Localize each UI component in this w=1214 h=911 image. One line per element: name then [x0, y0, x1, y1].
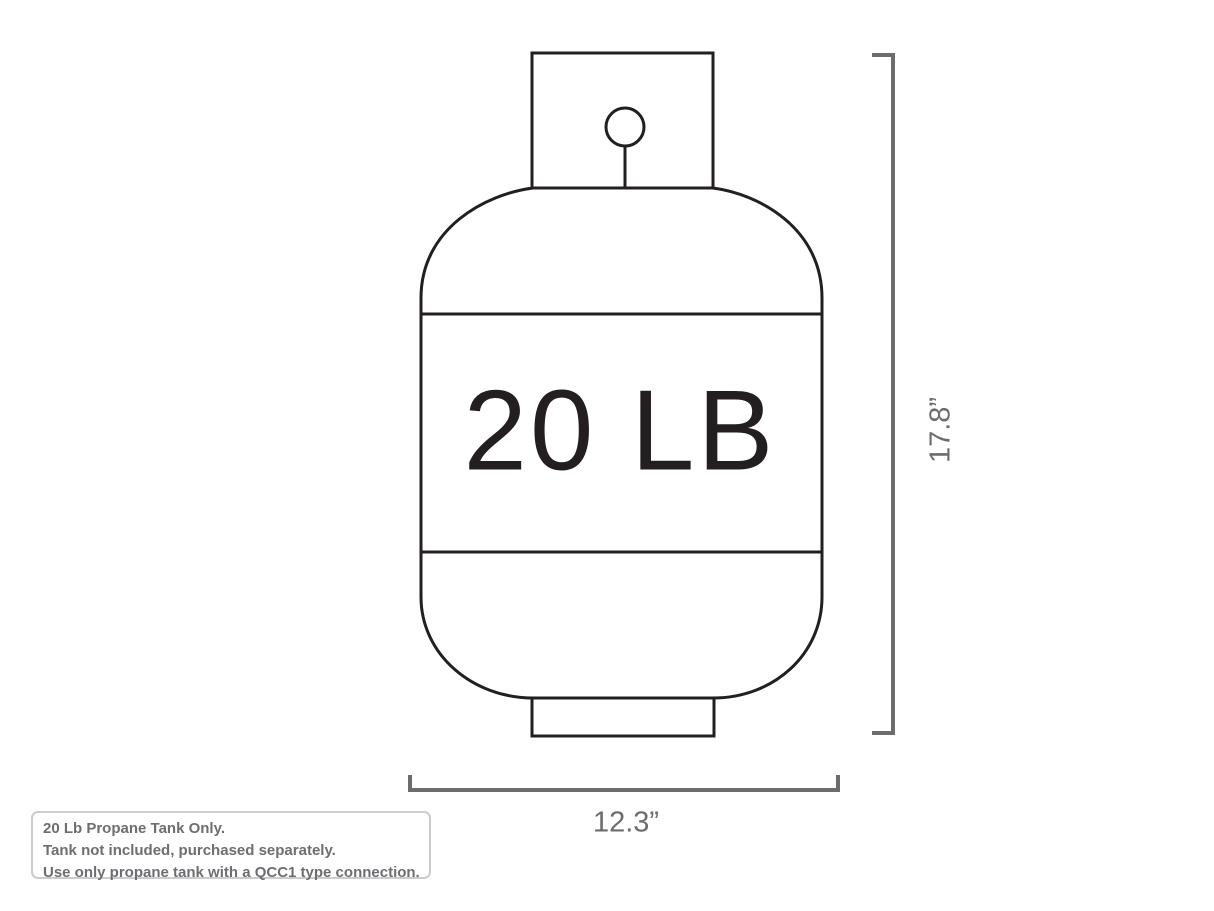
note-line-not-included: Tank not included, purchased separately.: [43, 840, 419, 862]
tank-base: [532, 698, 714, 736]
width-dimension-label: 12.3”: [593, 807, 659, 840]
note-line-qcc1-connection: Use only propane tank with a QCC1 type c…: [43, 862, 419, 884]
valve-circle: [606, 108, 644, 146]
tank-capacity-label: 20 LB: [464, 366, 777, 497]
propane-tank-dimension-diagram: 20 LB 17.8” 12.3” 20 Lb Propane Tank Onl…: [0, 0, 1214, 911]
tank-collar: [532, 53, 713, 188]
width-dimension-line: [410, 775, 838, 790]
note-line-tank-only: 20 Lb Propane Tank Only.: [43, 818, 419, 840]
height-dimension-line: [872, 55, 893, 733]
disclaimer-note-box: 20 Lb Propane Tank Only. Tank not includ…: [31, 811, 431, 879]
height-dimension-label: 17.8”: [925, 397, 958, 463]
